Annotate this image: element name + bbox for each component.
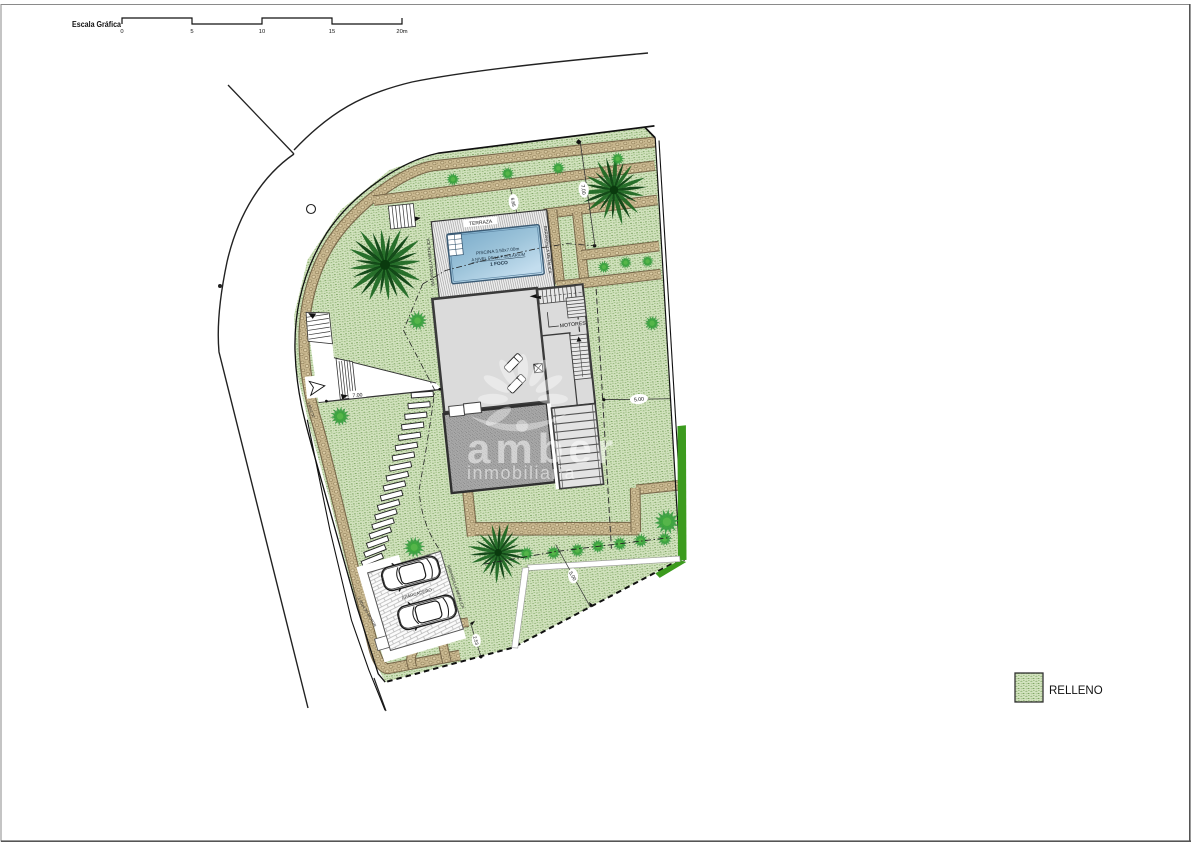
svg-text:5: 5 xyxy=(190,29,193,35)
svg-text:5.00: 5.00 xyxy=(634,396,645,403)
svg-text:0: 0 xyxy=(120,29,123,35)
svg-text:15: 15 xyxy=(329,29,335,35)
svg-text:10: 10 xyxy=(259,29,265,35)
svg-text:RELLENO: RELLENO xyxy=(1049,685,1103,697)
svg-text:7.00: 7.00 xyxy=(352,392,363,399)
svg-text:Escala Gráfica: Escala Gráfica xyxy=(72,19,121,29)
svg-text:inmobiliaria: inmobiliaria xyxy=(467,463,576,483)
svg-text:20m: 20m xyxy=(396,29,407,35)
